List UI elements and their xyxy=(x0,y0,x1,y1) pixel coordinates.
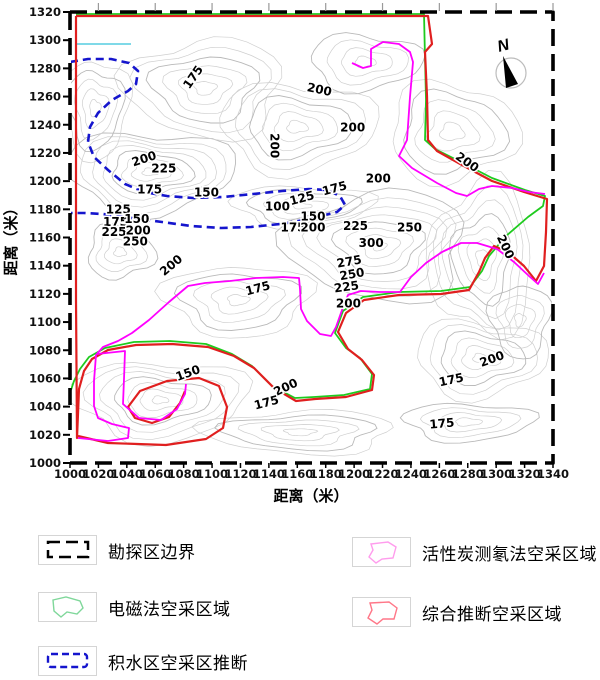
compass-needle-icon xyxy=(503,56,518,88)
contour-label: 225 xyxy=(343,219,368,233)
contour-label: 200 xyxy=(478,348,506,370)
x-tick-label: 1280 xyxy=(452,467,484,481)
contour-label: 175 xyxy=(253,393,281,413)
legend-label: 综合推断空采区域 xyxy=(422,600,562,625)
y-tick-label: 1160 xyxy=(29,231,61,245)
y-tick-label: 1100 xyxy=(29,315,61,329)
contour-label: 175 xyxy=(321,178,349,198)
y-tick-label: 1220 xyxy=(29,146,61,160)
x-tick-label: 1160 xyxy=(281,467,313,481)
contour-label: 100 xyxy=(265,200,290,214)
legend-item-boundary: 勘探区边界 xyxy=(38,535,196,565)
y-tick-label: 1040 xyxy=(29,400,61,414)
region-path-4 xyxy=(97,351,186,420)
legend-item-water: 积水区空采区推断 xyxy=(38,646,248,676)
contour-line xyxy=(283,429,317,436)
y-tick-label: 1240 xyxy=(29,118,61,132)
y-tick-label: 1180 xyxy=(29,202,61,216)
x-tick-label: 1240 xyxy=(395,467,427,481)
combined-swatch-icon xyxy=(353,598,410,626)
contour-label: 175 xyxy=(180,63,206,92)
contour-label: 300 xyxy=(359,236,384,250)
y-tick-label: 1320 xyxy=(29,5,61,19)
legend-swatch xyxy=(352,537,411,567)
x-tick-label: 1340 xyxy=(537,467,569,481)
legend-label: 勘探区边界 xyxy=(108,538,196,563)
contour-line xyxy=(130,47,272,133)
contour-line xyxy=(261,425,339,441)
y-tick-label: 1020 xyxy=(29,428,61,442)
contour-line xyxy=(439,122,465,141)
radon-swatch-icon xyxy=(353,538,410,566)
legend-item-radon: 活性炭测氡法空采区域 xyxy=(352,537,597,567)
contour-line xyxy=(114,37,282,142)
x-axis-title: 距离（米） xyxy=(273,487,348,505)
x-tick-label: 1320 xyxy=(509,467,541,481)
compass-n-label: N xyxy=(496,36,512,56)
contour-line xyxy=(90,99,102,117)
contour-label: 150 xyxy=(174,362,202,384)
contour-label: 175 xyxy=(429,415,455,431)
contour-line xyxy=(287,120,309,133)
x-tick-label: 1080 xyxy=(168,467,200,481)
contour-label: 200 xyxy=(306,80,333,99)
contour-map-figure: { "compass": { "label": "N" }, "axes": {… xyxy=(0,0,600,677)
legend-label: 活性炭测氡法空采区域 xyxy=(422,540,597,565)
contour-label: 200 xyxy=(340,121,365,135)
y-tick-label: 1280 xyxy=(29,61,61,75)
contour-label: 175 xyxy=(438,370,465,389)
y-tick-label: 1140 xyxy=(29,259,61,273)
x-tick-label: 1040 xyxy=(111,467,143,481)
contour-label: 250 xyxy=(123,235,148,249)
legend-swatch xyxy=(38,535,97,565)
contour-line xyxy=(56,62,132,163)
contour-label: 250 xyxy=(397,221,422,235)
contour-line xyxy=(152,396,169,404)
legend-swatch xyxy=(38,592,97,622)
legend-item-em: 电磁法空采区域 xyxy=(38,592,231,622)
x-tick-label: 1100 xyxy=(196,467,228,481)
contour-line xyxy=(427,111,481,151)
contour-line xyxy=(193,280,285,322)
em-swatch-icon xyxy=(39,593,96,621)
contour-line xyxy=(327,40,408,85)
contour-line xyxy=(82,89,109,129)
legend-item-combined: 综合推断空采区域 xyxy=(352,597,562,627)
contour-line xyxy=(238,420,359,446)
y-tick-label: 1260 xyxy=(29,90,61,104)
y-tick-label: 1200 xyxy=(29,174,61,188)
legend-label: 电磁法空采区域 xyxy=(108,595,231,620)
contour-line xyxy=(456,418,483,427)
contour-line xyxy=(174,274,301,331)
contour-label: 200 xyxy=(336,297,361,311)
y-axis-title: 距离（米） xyxy=(2,200,20,275)
contour-line xyxy=(393,79,523,187)
contour-label: 200 xyxy=(267,133,281,158)
contour-line xyxy=(163,66,247,114)
y-tick-label: 1300 xyxy=(29,33,61,47)
contour-label: 150 xyxy=(194,185,219,199)
contour-value-labels: 1752002002002002251751501752001001251251… xyxy=(101,63,517,432)
contour-line xyxy=(128,383,197,418)
y-tick-label: 1120 xyxy=(29,287,61,301)
contour-label: 200 xyxy=(366,171,391,185)
water-swatch-icon xyxy=(39,647,96,675)
x-tick-label: 1020 xyxy=(82,467,114,481)
x-tick-label: 1120 xyxy=(224,467,256,481)
contour-line xyxy=(215,415,377,451)
legend-swatch xyxy=(38,646,97,676)
contour-line xyxy=(74,79,117,140)
legend-swatch xyxy=(352,597,411,627)
x-tick-label: 1000 xyxy=(54,467,86,481)
contour-label: 225 xyxy=(151,161,176,175)
x-tick-label: 1300 xyxy=(480,467,512,481)
legend: 勘探区边界电磁法空采区域积水区空采区推断活性炭测氡法空采区域综合推断空采区域 xyxy=(0,520,600,677)
contour-line xyxy=(506,304,536,337)
region-path-2 xyxy=(71,14,545,398)
x-tick-label: 1200 xyxy=(338,467,370,481)
x-tick-label: 1260 xyxy=(423,467,455,481)
contour-line xyxy=(194,82,218,96)
contour-label: 200 xyxy=(157,252,185,279)
x-tick-label: 1220 xyxy=(367,467,399,481)
legend-label: 积水区空采区推断 xyxy=(108,649,248,674)
north-arrow: N xyxy=(496,36,526,88)
x-tick-label: 1060 xyxy=(139,467,171,481)
y-tick-label: 1060 xyxy=(29,371,61,385)
boundary-swatch-icon xyxy=(39,536,96,564)
contour-map: 1320130012801260124012201200118011601140… xyxy=(0,0,600,520)
x-tick-label: 1180 xyxy=(310,467,342,481)
x-tick-label: 1140 xyxy=(253,467,285,481)
contour-line xyxy=(341,48,392,77)
contour-label: 175 xyxy=(137,183,162,197)
contour-label: 150 xyxy=(300,209,325,223)
y-tick-label: 1080 xyxy=(29,343,61,357)
